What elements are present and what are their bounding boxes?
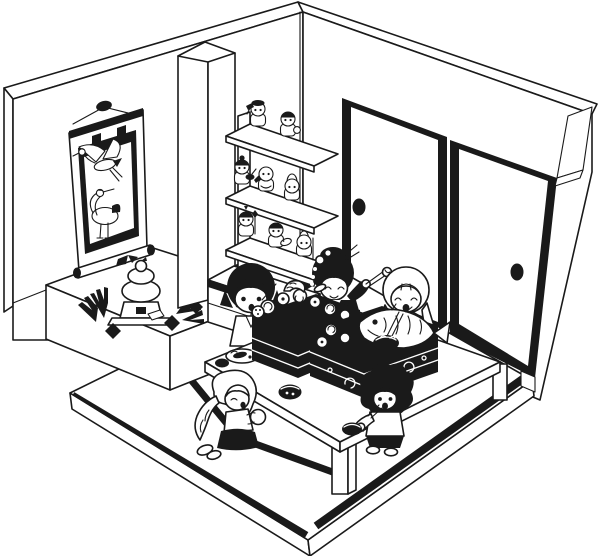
illustration-canvas xyxy=(0,0,600,556)
door-handle xyxy=(511,264,524,281)
bowl-dots xyxy=(279,385,302,400)
door-handle xyxy=(353,199,366,216)
room-illustration xyxy=(0,0,600,556)
alcove-pillar xyxy=(178,42,235,308)
small-bowl xyxy=(215,359,229,368)
